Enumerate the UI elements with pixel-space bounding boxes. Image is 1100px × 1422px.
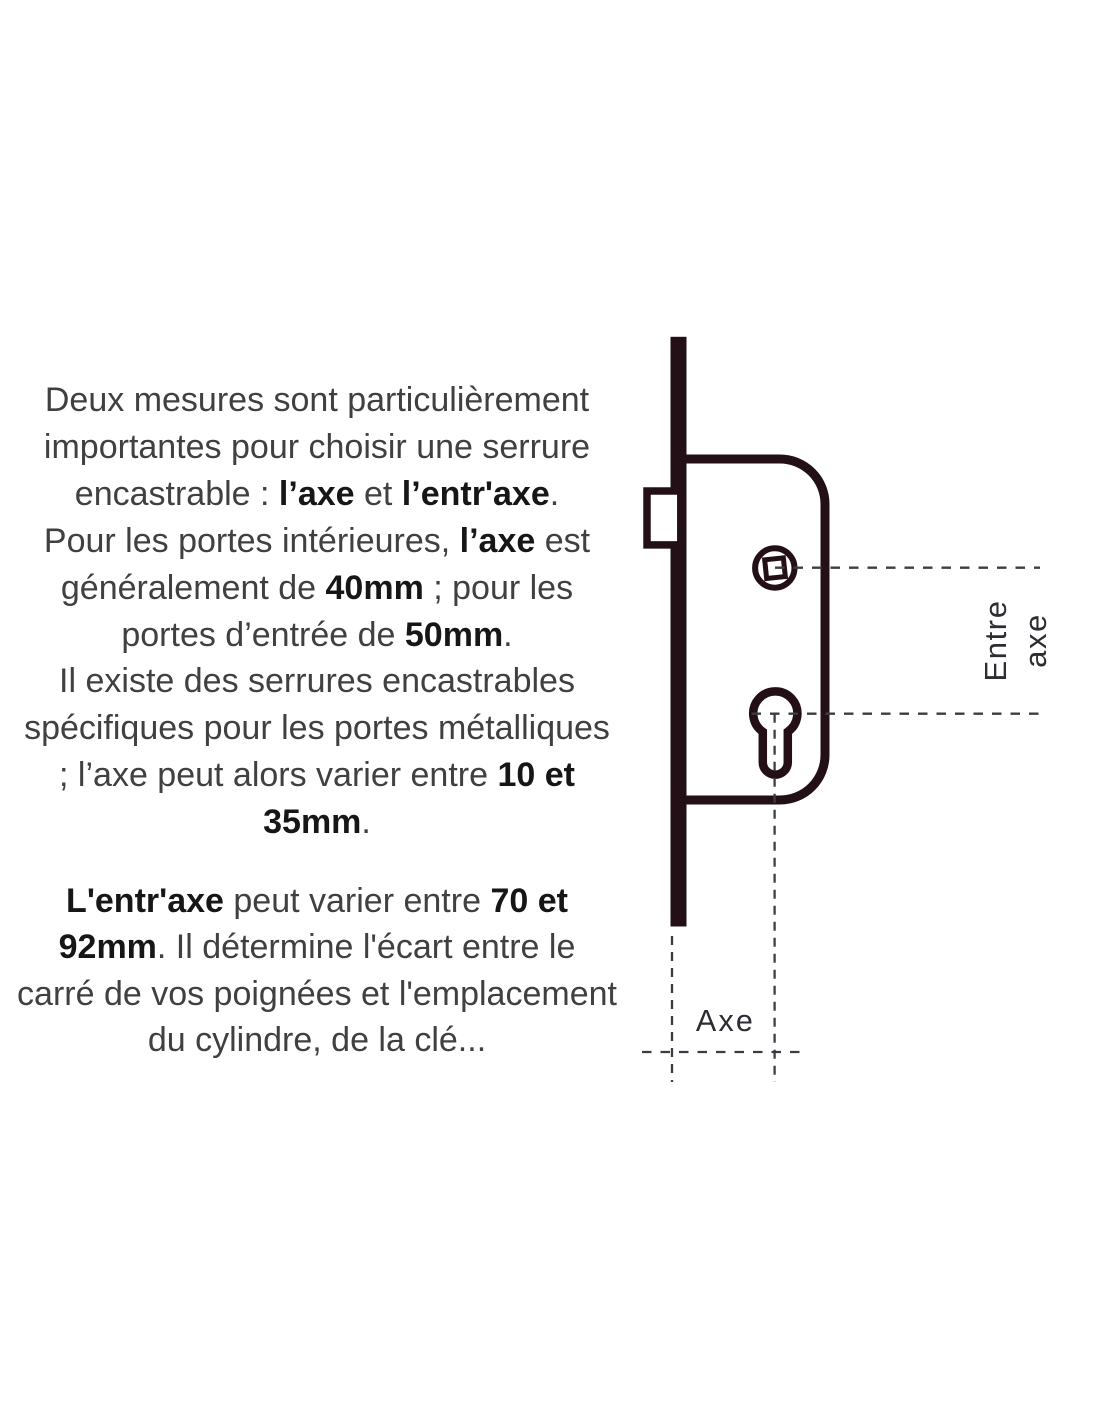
svg-text:axe: axe	[1018, 613, 1053, 668]
svg-text:Entre: Entre	[978, 599, 1013, 681]
svg-text:Axe: Axe	[696, 1004, 755, 1038]
